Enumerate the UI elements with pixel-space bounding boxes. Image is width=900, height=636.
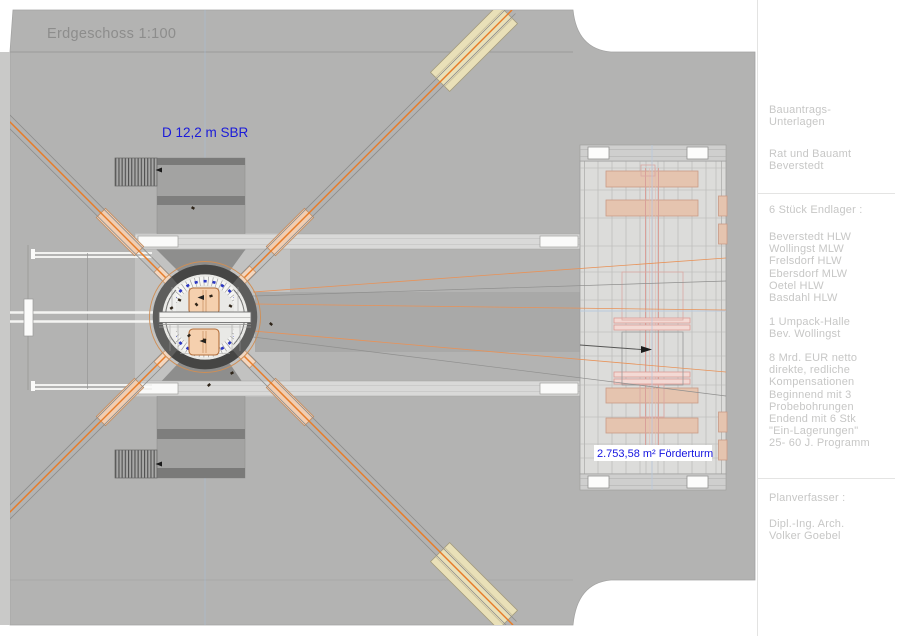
shaft-corridor [159,312,251,327]
title-block-panel: Bauantrags- Unterlagen Rat und Bauamt Be… [757,0,900,636]
stairs-hatch-lower [115,450,157,478]
titleblock-endlager-heading: 6 Stück Endlager : [769,204,863,216]
titleblock-planverfasser-heading: Planverfasser : [769,492,845,504]
floor-plan: 2.753,58 m² Förderturm Erdgeschoss 1:100… [0,0,757,636]
foerderturm-building [580,145,727,490]
titleblock-planverfasser: Dipl.-Ing. Arch. Volker Goebel [769,518,844,542]
titleblock-amt: Rat und Bauamt Beverstedt [769,148,851,172]
corridor-band-lower [135,381,580,396]
titleblock-umpack: 1 Umpack-Halle Bev. Wollingst [769,316,850,340]
shaft-diameter-label: D 12,2 m SBR [162,125,249,140]
stairs-hatch-upper [115,158,157,186]
titleblock-bauantrag: Bauantrags- Unterlagen [769,104,831,128]
titleblock-endlager-list: Beverstedt HLW Wollingst MLW Frelsdorf H… [769,231,851,304]
shaft-cage-upper [189,288,219,314]
plan-page: 2.753,58 m² Förderturm Erdgeschoss 1:100… [0,0,900,636]
foerderturm-area-label: 2.753,58 m² Förderturm [597,448,713,460]
titleblock-divider [758,478,895,479]
sheet-left-strip [0,52,10,625]
drawing-title: Erdgeschoss 1:100 [47,26,176,42]
corridor-band-upper [135,234,580,249]
titleblock-divider [758,193,895,194]
titleblock-kompensation: 8 Mrd. EUR netto direkte, redliche Kompe… [769,352,870,450]
